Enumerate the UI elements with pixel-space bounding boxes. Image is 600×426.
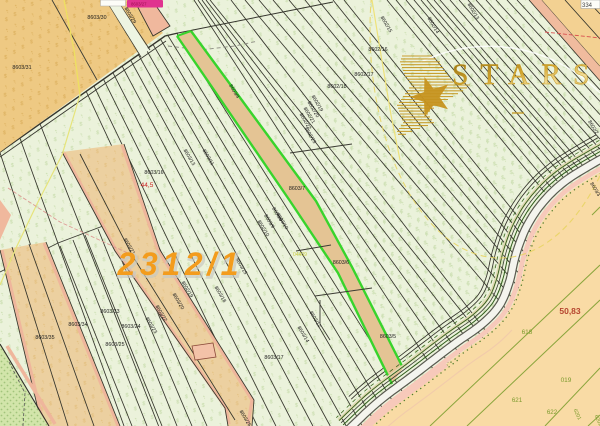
svg-text:STARS: STARS (452, 59, 600, 91)
svg-text:8603/27: 8603/27 (131, 2, 147, 7)
svg-text:8603/25: 8603/25 (105, 342, 124, 348)
svg-text:334: 334 (582, 3, 593, 9)
svg-text:8603/33: 8603/33 (100, 309, 119, 315)
svg-text:50,83: 50,83 (559, 306, 581, 316)
svg-text:8602/17: 8602/17 (354, 72, 373, 78)
svg-text:04409: 04409 (293, 252, 307, 258)
svg-text:019: 019 (561, 377, 572, 384)
svg-text:8602/16: 8602/16 (368, 47, 387, 53)
svg-text:44,5: 44,5 (141, 182, 154, 189)
svg-text:618: 618 (522, 329, 533, 336)
svg-text:8602/18: 8602/18 (327, 84, 346, 90)
svg-text:621: 621 (512, 397, 523, 404)
svg-text:8603/31: 8603/31 (12, 65, 31, 71)
svg-text:622: 622 (547, 409, 558, 416)
svg-text:8603/5: 8603/5 (380, 334, 396, 340)
svg-text:8603/34: 8603/34 (68, 322, 87, 328)
svg-text:8603/30: 8603/30 (87, 15, 106, 21)
svg-text:8603/24: 8603/24 (121, 324, 140, 330)
svg-text:8603/35: 8603/35 (35, 335, 54, 341)
svg-text:2312/1: 2312/1 (117, 246, 243, 282)
svg-text:8603/16: 8603/16 (144, 170, 163, 176)
svg-text:8603/6: 8603/6 (333, 260, 349, 266)
svg-text:8603/17: 8603/17 (264, 355, 283, 361)
svg-text:8603/7: 8603/7 (289, 186, 305, 192)
